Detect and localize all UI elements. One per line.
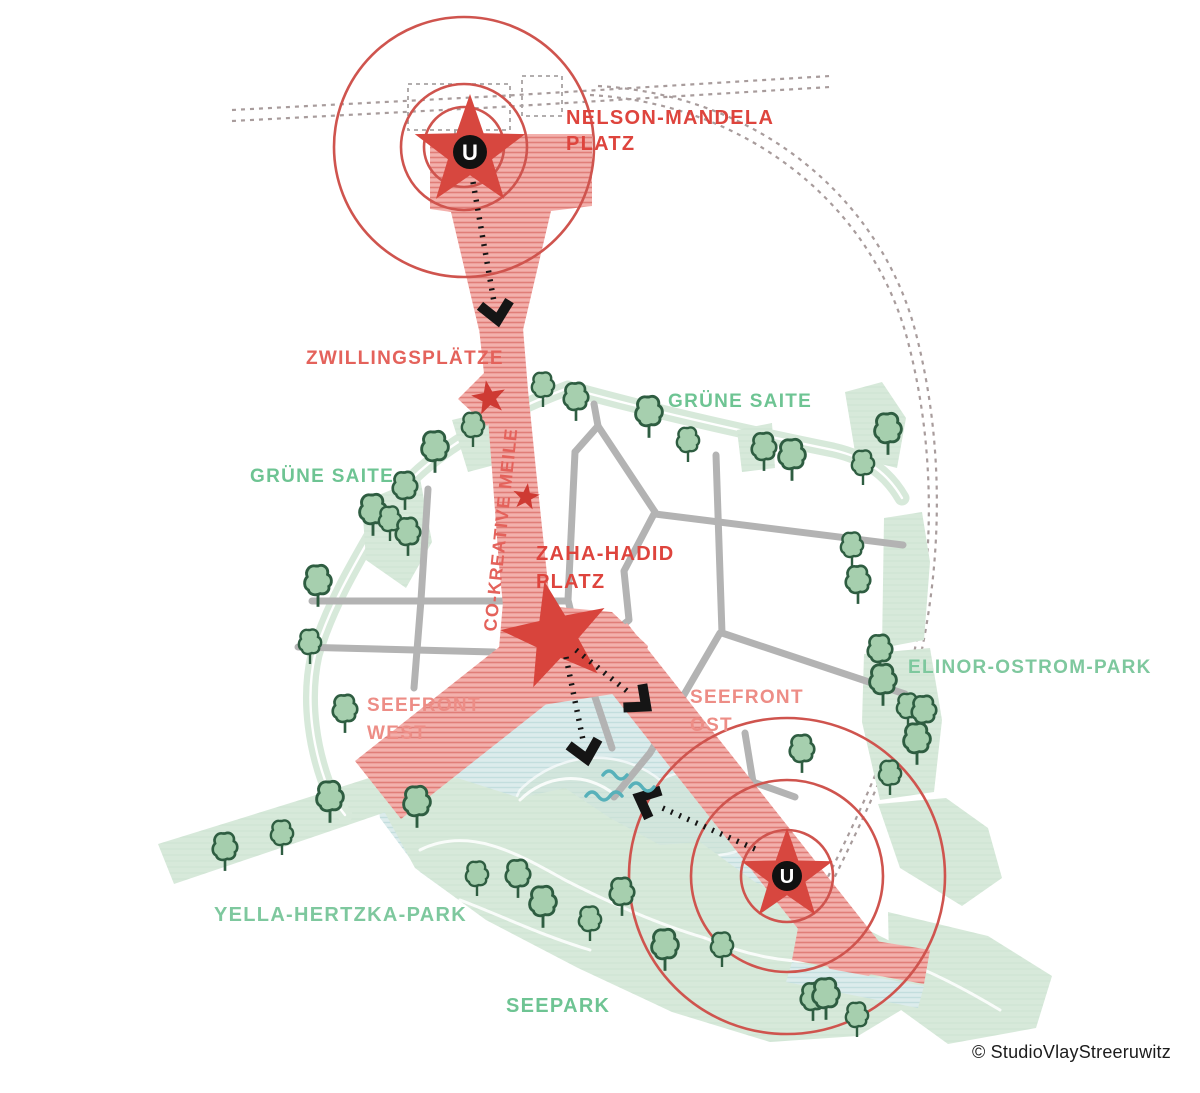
label-seefront-west: WEST bbox=[367, 723, 427, 744]
u-bahn-letter: U bbox=[780, 866, 794, 888]
ubahn-station-north: U bbox=[453, 135, 487, 169]
label-zwillingsplaetze: ZWILLINGSPLÄTZE bbox=[306, 348, 504, 369]
tree-icon bbox=[841, 532, 863, 567]
label-seefront-ost: SEEFRONT bbox=[690, 687, 804, 708]
label-seepark: SEEPARK bbox=[506, 995, 610, 1017]
tree-icon bbox=[790, 735, 815, 773]
tree-icon bbox=[564, 383, 589, 421]
tree-icon bbox=[333, 695, 358, 733]
label-yella-hertzka-park: YELLA-HERTZKA-PARK bbox=[214, 904, 467, 926]
copyright-credit: © StudioVlayStreeruwitz bbox=[972, 1042, 1171, 1062]
label-seefront-ost: OST bbox=[690, 715, 733, 736]
masterplan-map: U U NELSON-MANDELA PLATZ ZWILLINGSPLÄTZE… bbox=[0, 0, 1200, 1093]
tree-icon bbox=[779, 439, 806, 480]
label-nelson-mandela-platz: NELSON-MANDELA bbox=[566, 107, 774, 129]
tree-icon bbox=[636, 396, 663, 437]
label-zaha-hadid-platz: PLATZ bbox=[536, 571, 605, 593]
label-elinor-ostrom-park: ELINOR-OSTROM-PARK bbox=[908, 657, 1152, 678]
tree-icon bbox=[677, 427, 699, 462]
label-gruene-saite-west: GRÜNE SAITE bbox=[250, 466, 394, 487]
u-bahn-letter: U bbox=[462, 140, 478, 165]
label-gruene-saite-ost: GRÜNE SAITE bbox=[668, 391, 812, 412]
tree-icon bbox=[852, 450, 874, 485]
label-zaha-hadid-platz: ZAHA-HADID bbox=[536, 543, 675, 565]
label-nelson-mandela-platz: PLATZ bbox=[566, 133, 635, 155]
ubahn-station-south: U bbox=[772, 861, 802, 891]
map-svg: U U NELSON-MANDELA PLATZ ZWILLINGSPLÄTZE… bbox=[0, 0, 1200, 1093]
tree-icon bbox=[846, 566, 871, 604]
label-seefront-west: SEEFRONT bbox=[367, 695, 481, 716]
